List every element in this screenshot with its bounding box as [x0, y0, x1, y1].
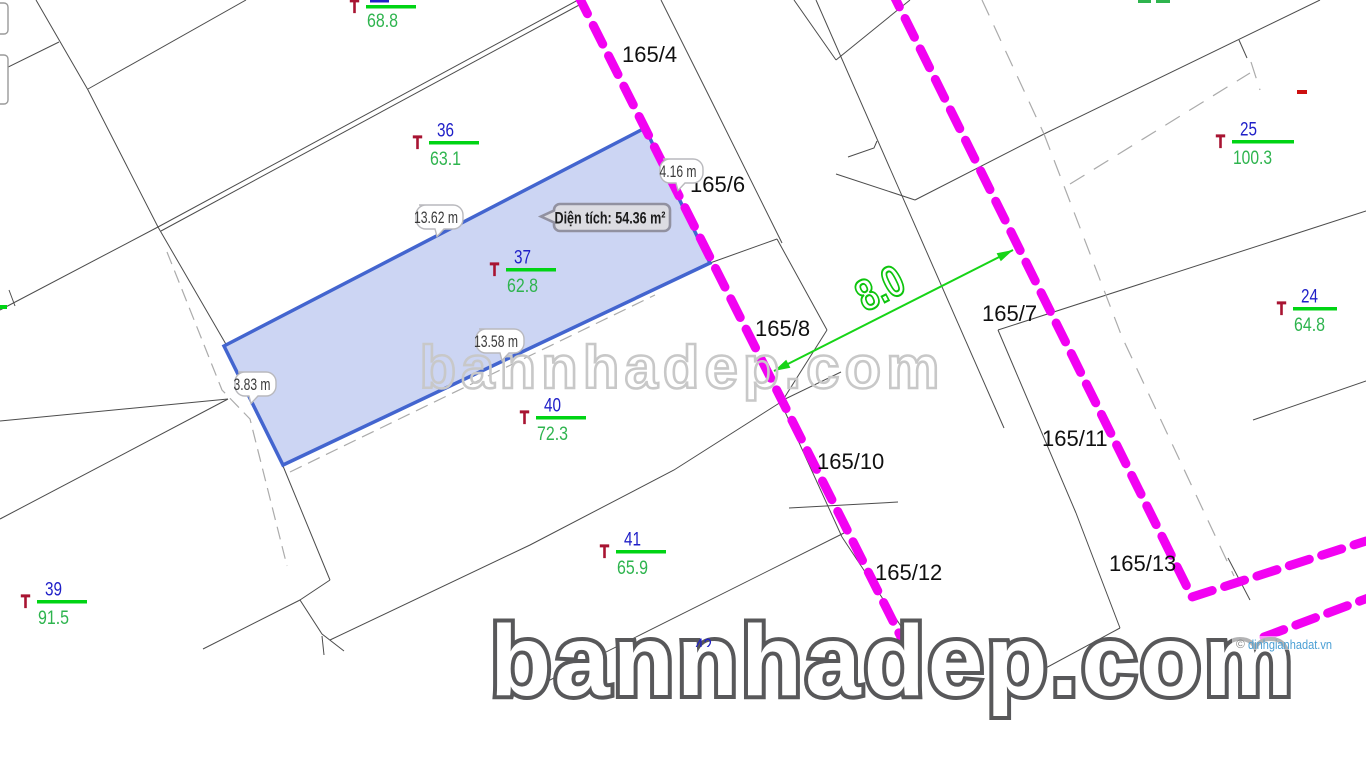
svg-text:63.1: 63.1 [430, 149, 461, 170]
svg-text:bannhadep.com: bannhadep.com [490, 605, 1296, 717]
svg-text:3.83 m: 3.83 m [234, 376, 271, 394]
svg-text:39: 39 [45, 580, 62, 601]
svg-text:65.9: 65.9 [617, 558, 648, 579]
svg-text:165/11: 165/11 [1042, 426, 1108, 451]
svg-text:62.8: 62.8 [507, 276, 538, 297]
svg-text:68.8: 68.8 [367, 11, 398, 32]
svg-text:165/8: 165/8 [755, 316, 810, 341]
svg-text:64.8: 64.8 [1294, 315, 1325, 336]
svg-text:91.5: 91.5 [38, 608, 69, 629]
svg-text:©: © [1236, 637, 1245, 651]
svg-text:165/7: 165/7 [982, 301, 1037, 326]
svg-text:40: 40 [544, 396, 561, 417]
svg-text:Diện tích: 54.36 m²: Diện tích: 54.36 m² [555, 209, 666, 228]
svg-text:dinhgianhadat.vn: dinhgianhadat.vn [1248, 638, 1332, 652]
svg-text:100.3: 100.3 [1233, 148, 1272, 169]
svg-text:165/10: 165/10 [817, 449, 884, 474]
svg-text:4.16 m: 4.16 m [660, 163, 697, 181]
svg-text:165/12: 165/12 [875, 560, 942, 585]
svg-text:165/4: 165/4 [622, 42, 677, 67]
svg-text:24: 24 [1301, 287, 1318, 308]
svg-text:165/13: 165/13 [1109, 551, 1176, 576]
svg-text:72.3: 72.3 [537, 424, 568, 445]
svg-text:13.58 m: 13.58 m [474, 333, 518, 351]
svg-text:13.62 m: 13.62 m [414, 209, 458, 227]
svg-text:25: 25 [1240, 120, 1257, 141]
svg-text:36: 36 [437, 121, 454, 142]
svg-text:37: 37 [514, 248, 531, 269]
svg-text:41: 41 [624, 530, 641, 551]
